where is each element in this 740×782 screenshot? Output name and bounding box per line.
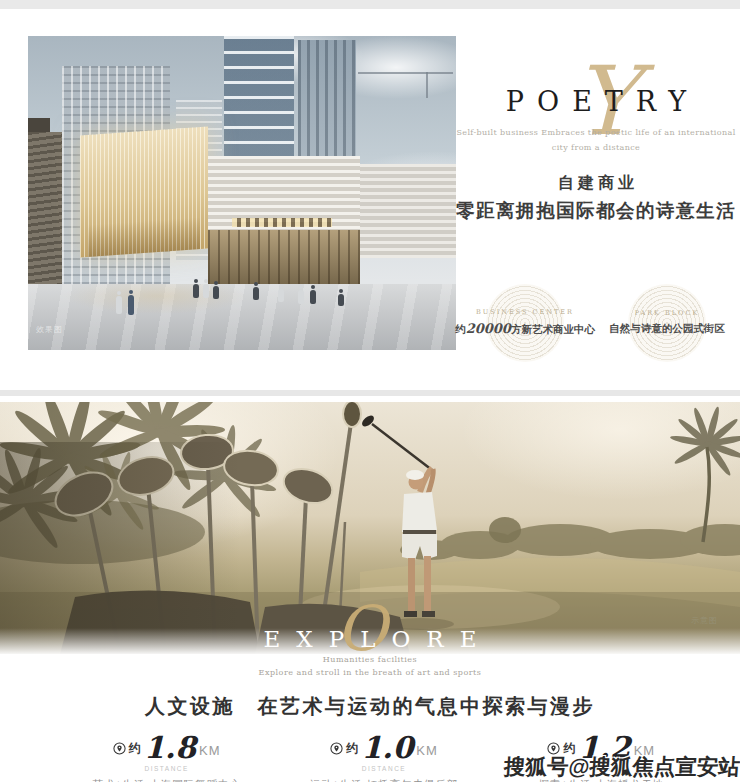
subtitle-line-1: Humanities facilities bbox=[0, 654, 740, 667]
badge-title-en: PARK BLOCK bbox=[635, 309, 700, 317]
badge-park-block: PARK BLOCK 自然与诗意的公园式街区 bbox=[599, 281, 735, 365]
building-rendering-photo: 效果图 bbox=[28, 36, 456, 350]
retail-podium-shape bbox=[208, 156, 360, 284]
poetry-headline-cn-1: 自建商业 bbox=[456, 173, 740, 194]
poetry-tagline: Self-built business Embraces the poetic … bbox=[456, 126, 736, 156]
plaza-shape bbox=[28, 284, 456, 350]
distance-item: 约 1.8 KM DISTANCE 艺术+生活 上海国际舞蹈中心 bbox=[58, 733, 275, 782]
distance-description: 运动+生活 虹桥高尔夫俱乐部 bbox=[275, 778, 492, 782]
poetry-section: 效果图 Y POETRY Self-built business Embrace… bbox=[0, 9, 740, 390]
explore-headline-cn: 人文设施 在艺术与运动的气息中探索与漫步 bbox=[0, 693, 740, 720]
feature-badges: BUSINESS CENTER 约20000方新艺术商业中心 PARK BLOC… bbox=[456, 281, 736, 365]
badge-text-cn: 自然与诗意的公园式街区 bbox=[609, 322, 725, 336]
badge-title-en: BUSINESS CENTER bbox=[476, 308, 574, 316]
distance-unit: KM bbox=[199, 743, 221, 758]
signage-strip bbox=[232, 218, 332, 227]
approx-label: 约 bbox=[346, 740, 358, 757]
top-border-strip bbox=[0, 0, 740, 9]
explore-subtitle-en: Humanities facilities Explore and stroll… bbox=[0, 654, 740, 680]
crane-shape bbox=[426, 72, 428, 98]
sohu-watermark: 搜狐号@搜狐焦点宣安站 bbox=[503, 752, 740, 781]
distance-item: 约 1.0 KM DISTANCE 运动+生活 虹桥高尔夫俱乐部 bbox=[275, 733, 492, 782]
crane-shape bbox=[358, 72, 453, 74]
pedestrian bbox=[278, 289, 284, 302]
pedestrian bbox=[213, 286, 219, 299]
distance-label: DISTANCE bbox=[58, 765, 275, 772]
explore-title: EXPLORE bbox=[264, 626, 493, 652]
location-pin-icon bbox=[330, 742, 343, 755]
pedestrian bbox=[203, 284, 209, 298]
gold-pavilion-shape bbox=[80, 127, 208, 258]
distance-value: 1.8 bbox=[144, 733, 196, 763]
pedestrian bbox=[128, 295, 134, 315]
badge-business-center: BUSINESS CENTER 约20000方新艺术商业中心 bbox=[457, 281, 593, 365]
location-pin-icon bbox=[113, 742, 126, 755]
explore-section: 示意图 O EXPLORE bbox=[0, 402, 740, 654]
pedestrian bbox=[193, 284, 199, 298]
distance-value: 1.0 bbox=[361, 733, 413, 763]
pedestrian bbox=[253, 287, 259, 300]
approx-label: 约 bbox=[129, 740, 141, 757]
photo-caption: 示意图 bbox=[691, 615, 718, 626]
explore-title-block: O EXPLORE bbox=[0, 626, 740, 652]
distance-description: 艺术+生活 上海国际舞蹈中心 bbox=[58, 778, 275, 782]
pedestrian bbox=[298, 290, 304, 304]
badge-text-cn: 约20000方新艺术商业中心 bbox=[455, 321, 595, 337]
tagline-line-1: Self-built business Embraces the poetic … bbox=[456, 126, 736, 141]
building-shape bbox=[360, 164, 456, 258]
distance-unit: KM bbox=[416, 743, 438, 758]
poetry-text-block: Y POETRY Self-built business Embraces th… bbox=[456, 36, 736, 365]
pedestrian bbox=[338, 294, 344, 306]
pedestrian bbox=[116, 296, 122, 314]
promo-poster: 效果图 Y POETRY Self-built business Embrace… bbox=[0, 0, 740, 782]
poetry-title: POETRY bbox=[456, 86, 740, 117]
subtitle-line-2: Explore and stroll in the breath of art … bbox=[0, 667, 740, 680]
pedestrian bbox=[310, 290, 316, 304]
section-divider-strip bbox=[0, 390, 740, 396]
tagline-line-2: city from a distance bbox=[456, 141, 736, 156]
render-caption: 效果图 bbox=[36, 324, 63, 335]
distance-label: DISTANCE bbox=[275, 765, 492, 772]
poetry-headline-cn-2: 零距离拥抱国际都会的诗意生活 bbox=[456, 198, 736, 223]
badge-number: 20000 bbox=[466, 321, 511, 336]
